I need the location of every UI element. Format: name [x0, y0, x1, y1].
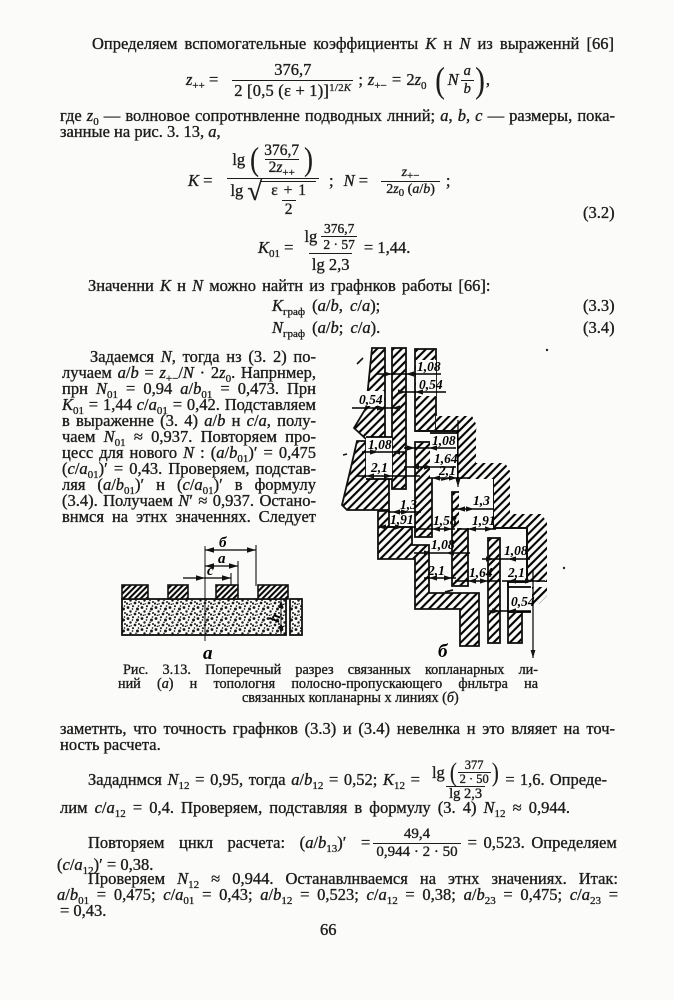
svg-text:2,1: 2,1 [438, 463, 456, 478]
svg-text:1,58: 1,58 [433, 513, 457, 528]
svg-text:а: а [203, 643, 213, 664]
svg-text:1,91: 1,91 [472, 513, 496, 528]
svg-text:1,08: 1,08 [368, 437, 392, 452]
svg-text:1,91: 1,91 [390, 512, 414, 527]
svg-text:1,08: 1,08 [417, 359, 441, 374]
svg-text:c: c [207, 563, 214, 579]
svg-text:2,1: 2,1 [507, 565, 525, 580]
svg-text:0,54: 0,54 [511, 594, 535, 609]
svg-text:1,3: 1,3 [473, 493, 490, 508]
svg-text:б: б [438, 641, 449, 662]
svg-text:0,54: 0,54 [359, 392, 383, 407]
svg-text:1,3: 1,3 [400, 497, 417, 512]
svg-text:б: б [219, 535, 227, 551]
svg-text:1,08: 1,08 [504, 543, 528, 558]
svg-text:1,08: 1,08 [431, 537, 455, 552]
svg-text:1,64: 1,64 [469, 565, 493, 580]
svg-text:1,08: 1,08 [432, 433, 456, 448]
svg-text:2,1: 2,1 [370, 460, 388, 475]
svg-text:a: a [218, 551, 226, 567]
